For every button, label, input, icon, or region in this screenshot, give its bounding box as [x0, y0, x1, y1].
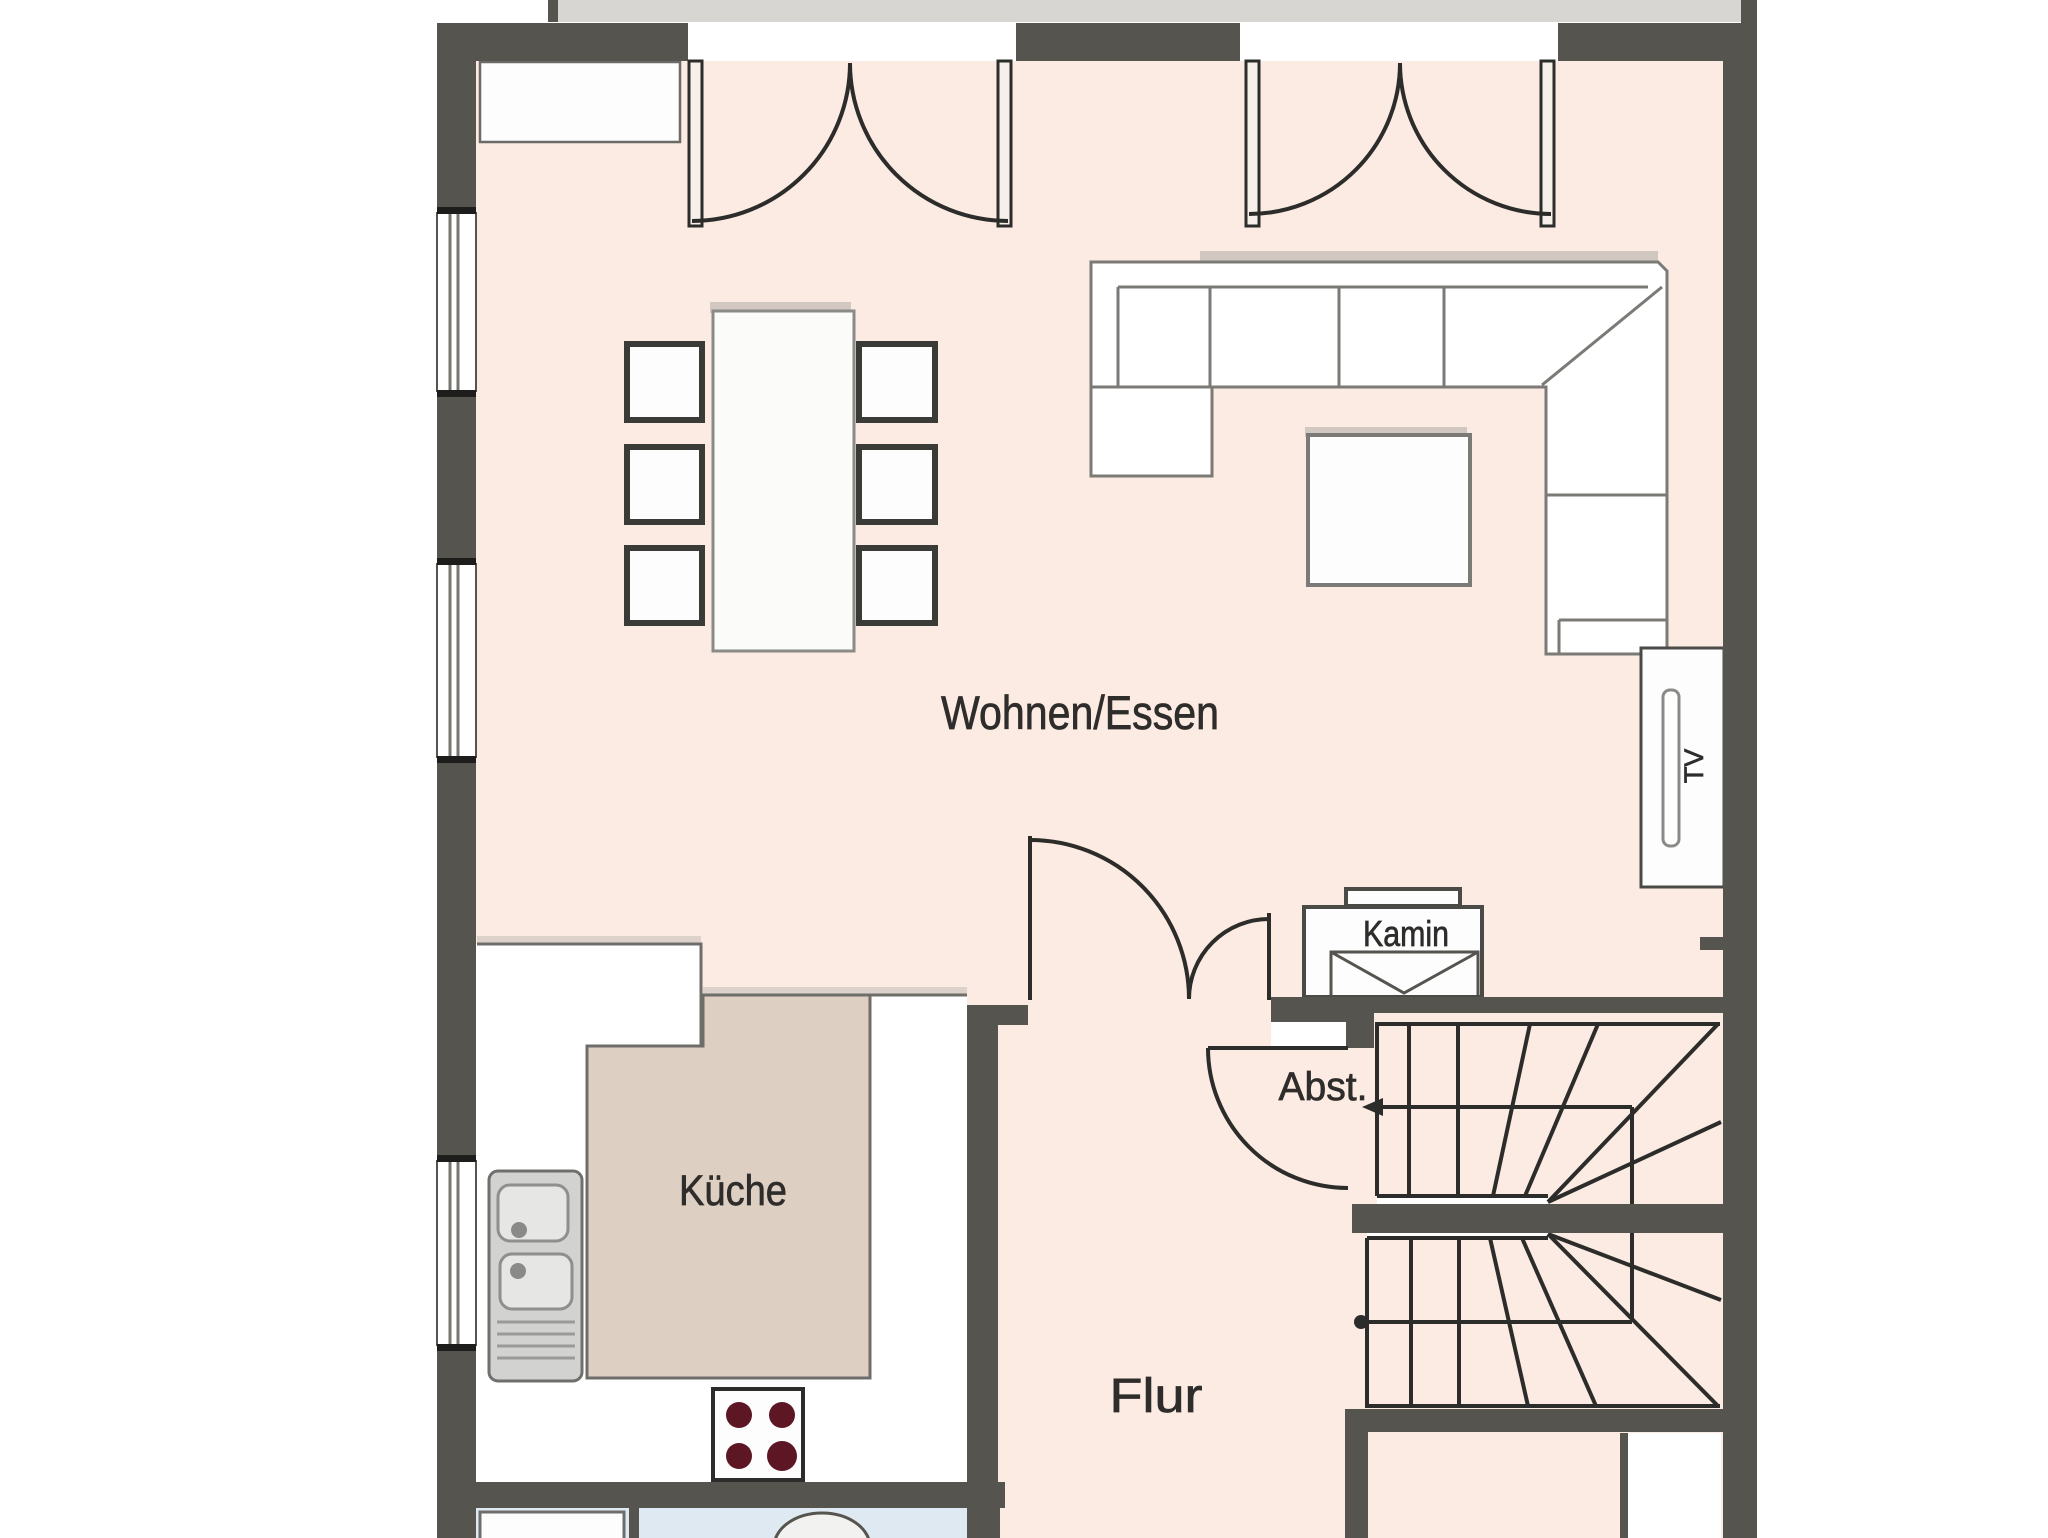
svg-text:Wohnen/Essen: Wohnen/Essen [941, 686, 1219, 739]
svg-text:Küche: Küche [679, 1167, 787, 1215]
svg-text:Kamin: Kamin [1363, 913, 1449, 954]
svg-text:TV: TV [1679, 749, 1709, 784]
svg-text:Flur: Flur [1110, 1370, 1203, 1423]
svg-text:Abst.: Abst. [1279, 1065, 1368, 1109]
